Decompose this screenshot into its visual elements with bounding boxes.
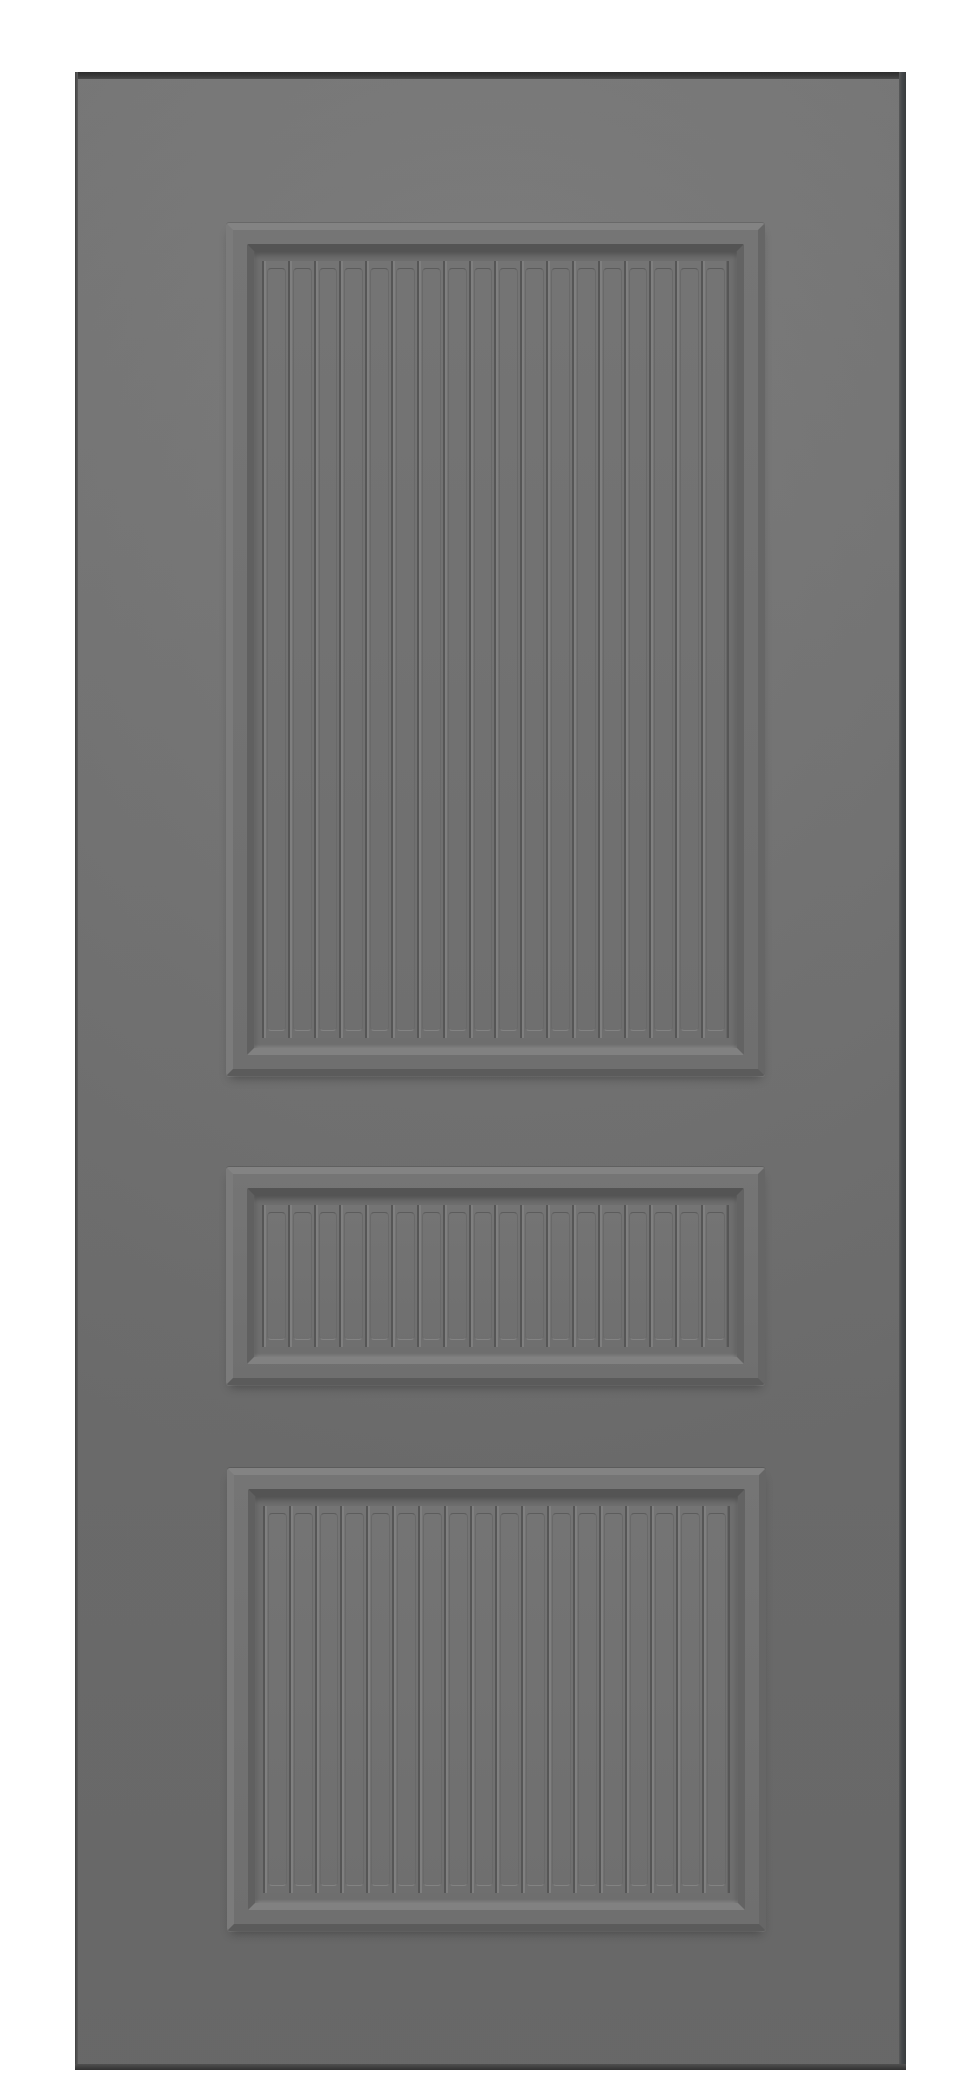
- batten: [443, 1205, 469, 1347]
- batten: [649, 1205, 675, 1347]
- door-left-edge: [75, 72, 78, 2070]
- batten: [546, 1205, 572, 1347]
- batten: [494, 1205, 520, 1347]
- batten: [365, 261, 391, 1038]
- batten: [547, 1506, 573, 1893]
- batten: [521, 1506, 547, 1893]
- batten: [418, 1506, 444, 1893]
- door-slab: [75, 72, 906, 2070]
- bottom-panel-recess: [248, 1489, 745, 1910]
- batten: [599, 1506, 625, 1893]
- batten: [625, 1506, 651, 1893]
- batten: [289, 1506, 315, 1893]
- batten: [314, 261, 340, 1038]
- batten: [650, 1506, 676, 1893]
- batten: [391, 1205, 417, 1347]
- batten: [339, 1205, 365, 1347]
- batten: [417, 261, 443, 1038]
- batten: [495, 1506, 521, 1893]
- batten: [263, 1506, 289, 1893]
- batten: [572, 261, 598, 1038]
- batten: [573, 1506, 599, 1893]
- batten: [624, 261, 650, 1038]
- batten: [520, 1205, 546, 1347]
- batten: [392, 1506, 418, 1893]
- batten: [443, 261, 469, 1038]
- batten: [675, 261, 701, 1038]
- batten: [444, 1506, 470, 1893]
- batten: [391, 261, 417, 1038]
- batten: [262, 261, 288, 1038]
- batten: [315, 1506, 341, 1893]
- middle-panel: [226, 1167, 765, 1385]
- door-top-edge: [75, 72, 906, 79]
- batten: [469, 261, 495, 1038]
- batten: [366, 1506, 392, 1893]
- batten: [262, 1205, 288, 1347]
- door-bottom-edge: [75, 2064, 906, 2070]
- batten: [598, 1205, 624, 1347]
- batten: [288, 1205, 314, 1347]
- top-panel-batten-field: [262, 261, 729, 1038]
- batten: [470, 1506, 496, 1893]
- middle-panel-batten-field: [262, 1205, 729, 1347]
- door-right-edge: [899, 72, 906, 2070]
- batten: [340, 1506, 366, 1893]
- batten: [365, 1205, 391, 1347]
- batten: [494, 261, 520, 1038]
- middle-panel-recess: [247, 1188, 744, 1364]
- batten: [417, 1205, 443, 1347]
- top-panel: [226, 223, 765, 1076]
- batten: [701, 1205, 729, 1347]
- batten: [546, 261, 572, 1038]
- top-panel-recess: [247, 244, 744, 1055]
- batten: [314, 1205, 340, 1347]
- batten: [702, 1506, 730, 1893]
- batten: [598, 261, 624, 1038]
- batten: [520, 261, 546, 1038]
- batten: [675, 1205, 701, 1347]
- batten: [288, 261, 314, 1038]
- batten: [649, 261, 675, 1038]
- batten: [469, 1205, 495, 1347]
- bottom-panel: [227, 1468, 766, 1931]
- bottom-panel-batten-field: [263, 1506, 730, 1893]
- batten: [701, 261, 729, 1038]
- batten: [339, 261, 365, 1038]
- batten: [624, 1205, 650, 1347]
- batten: [572, 1205, 598, 1347]
- batten: [676, 1506, 702, 1893]
